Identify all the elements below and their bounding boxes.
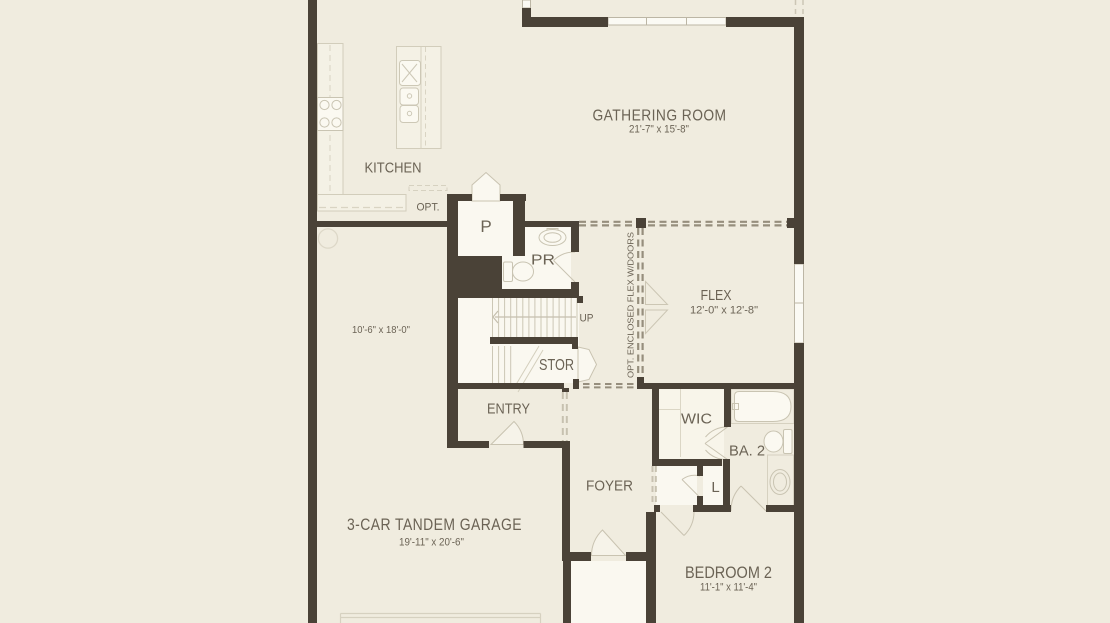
svg-text:OPT.: OPT. — [417, 202, 440, 214]
svg-text:UP: UP — [580, 313, 594, 325]
svg-text:FOYER: FOYER — [586, 478, 633, 495]
svg-text:P: P — [480, 217, 491, 236]
svg-text:KITCHEN: KITCHEN — [365, 160, 422, 177]
svg-text:12'-0" x 12'-8": 12'-0" x 12'-8" — [690, 305, 758, 317]
svg-text:STOR: STOR — [539, 357, 574, 374]
svg-text:3-CAR TANDEM GARAGE: 3-CAR TANDEM GARAGE — [347, 516, 522, 534]
svg-text:BEDROOM 2: BEDROOM 2 — [685, 564, 772, 582]
svg-text:GATHERING ROOM: GATHERING ROOM — [593, 108, 727, 125]
svg-text:ENTRY: ENTRY — [487, 401, 530, 418]
svg-text:L: L — [711, 479, 719, 496]
svg-text:19'-11" x 20'-6": 19'-11" x 20'-6" — [399, 537, 464, 549]
svg-text:11'-1" x 11'-4": 11'-1" x 11'-4" — [700, 582, 757, 594]
svg-text:WIC: WIC — [681, 411, 712, 428]
svg-text:BA. 2: BA. 2 — [729, 443, 765, 460]
svg-text:OPT. ENCLOSED FLEX W/DOORS: OPT. ENCLOSED FLEX W/DOORS — [627, 232, 636, 378]
svg-text:21'-7" x 15'-8": 21'-7" x 15'-8" — [629, 124, 689, 136]
svg-text:FLEX: FLEX — [701, 287, 732, 304]
svg-text:10'-6" x 18'-0": 10'-6" x 18'-0" — [352, 324, 410, 336]
svg-text:PR: PR — [531, 252, 555, 269]
